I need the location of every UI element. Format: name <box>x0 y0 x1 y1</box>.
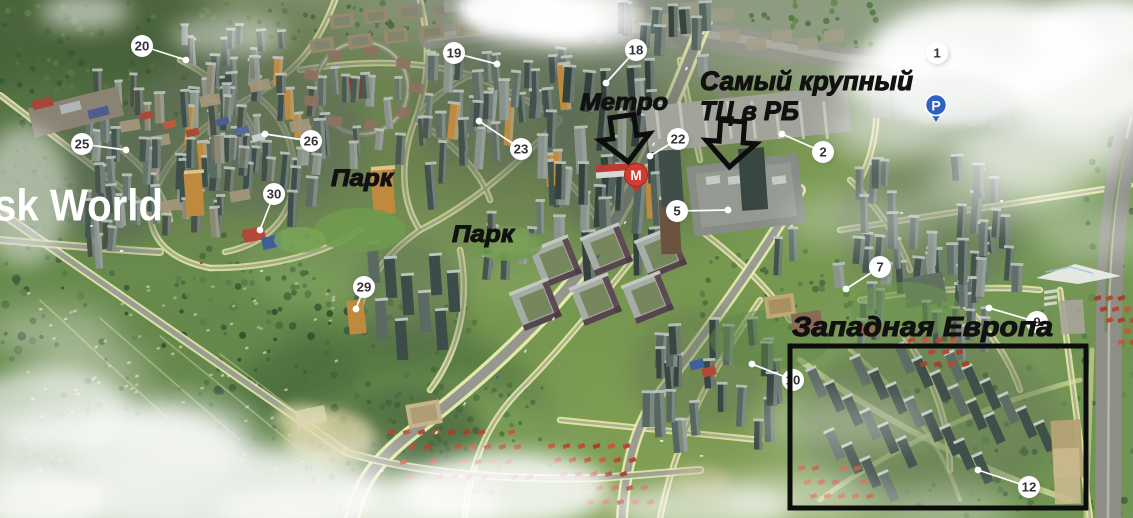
svg-text:М: М <box>630 168 641 183</box>
svg-text:1: 1 <box>933 46 940 61</box>
svg-text:19: 19 <box>447 46 462 61</box>
svg-text:ТЦ в РБ: ТЦ в РБ <box>700 96 799 126</box>
svg-text:Парк: Парк <box>331 165 395 192</box>
svg-text:Парк: Парк <box>452 221 516 248</box>
svg-text:sk World: sk World <box>0 182 163 231</box>
svg-text:Западная Европа: Западная Европа <box>792 311 1053 342</box>
svg-text:Самый крупный: Самый крупный <box>700 66 913 96</box>
svg-text:12: 12 <box>1022 480 1037 495</box>
svg-text:Метро: Метро <box>580 89 668 116</box>
svg-text:P: P <box>931 98 940 114</box>
svg-text:2: 2 <box>819 145 826 160</box>
svg-text:30: 30 <box>267 187 282 202</box>
svg-text:23: 23 <box>514 142 529 157</box>
svg-text:22: 22 <box>671 132 686 147</box>
svg-text:29: 29 <box>357 280 372 295</box>
svg-text:25: 25 <box>75 137 90 152</box>
svg-text:20: 20 <box>135 39 150 54</box>
svg-text:26: 26 <box>304 134 319 149</box>
svg-text:18: 18 <box>629 43 644 58</box>
svg-text:7: 7 <box>876 260 883 275</box>
svg-text:5: 5 <box>673 204 680 219</box>
